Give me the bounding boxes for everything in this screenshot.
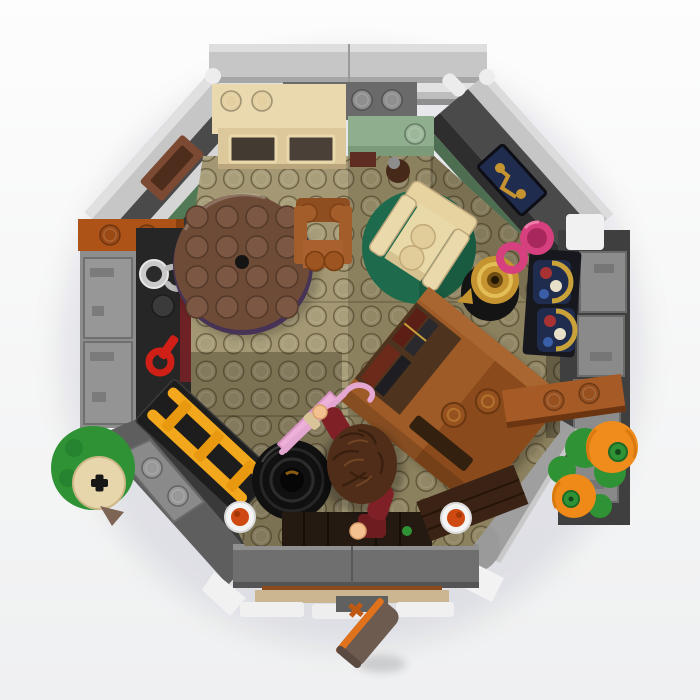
wall-face xyxy=(233,544,479,588)
lamp-hole xyxy=(491,276,499,284)
pumpkin-stem-center xyxy=(569,497,574,502)
gold-detail-2 xyxy=(516,189,526,199)
threshold-strip xyxy=(262,586,442,590)
stud xyxy=(352,90,372,110)
panel-emboss xyxy=(92,392,106,402)
stud xyxy=(252,91,272,111)
stud xyxy=(325,252,344,271)
green-plate-stud xyxy=(65,439,83,457)
white-slope-piece xyxy=(396,602,454,617)
stained-glass-tile xyxy=(533,260,571,304)
tile-cream xyxy=(554,328,566,340)
kitchen-dresser xyxy=(212,84,346,169)
panel-emboss xyxy=(594,264,614,273)
panel-emboss xyxy=(92,306,104,316)
jug-cap xyxy=(388,157,400,169)
food xyxy=(447,509,465,527)
stained-glass-tile xyxy=(537,308,575,352)
dark-stud xyxy=(152,295,174,317)
panel-emboss xyxy=(90,352,114,361)
dresser-window xyxy=(288,136,334,162)
tile-red xyxy=(540,267,552,279)
tile-red xyxy=(544,315,556,327)
stained-glass-windows xyxy=(522,248,581,357)
stud xyxy=(405,124,425,144)
black-cauldron xyxy=(252,440,332,520)
stud xyxy=(142,458,162,478)
right-hand xyxy=(350,523,366,539)
green-stud xyxy=(402,526,412,536)
axle-hole xyxy=(96,475,104,492)
panel-brick xyxy=(578,316,624,376)
gold-detail-1 xyxy=(495,163,505,173)
lego-product-photo: Top-down product photo of a LEGO octagon… xyxy=(0,0,700,700)
stud xyxy=(382,90,402,110)
food xyxy=(231,508,249,526)
white-slope-piece xyxy=(566,214,604,250)
panel-emboss xyxy=(590,352,612,361)
stud xyxy=(100,225,120,245)
tankard-opening xyxy=(146,266,162,282)
jug-opening xyxy=(527,228,547,248)
food-detail xyxy=(234,511,240,517)
panel-emboss xyxy=(90,268,114,277)
scene-svg: Top-down product photo of a LEGO octagon… xyxy=(0,0,700,700)
corner-cap xyxy=(205,68,221,84)
food-detail xyxy=(456,512,462,518)
stud xyxy=(306,252,325,271)
tile-blue xyxy=(543,337,553,347)
dresser-shade xyxy=(218,164,346,169)
white-slope-piece xyxy=(240,602,304,617)
dresser-window xyxy=(230,136,276,162)
tile-blue xyxy=(539,289,549,299)
corner-cap xyxy=(479,69,495,85)
stud xyxy=(221,91,241,111)
red-box xyxy=(350,152,376,167)
panel-brick xyxy=(580,252,626,312)
stud xyxy=(168,486,188,506)
pumpkin-stem-center xyxy=(615,449,621,455)
table-center-hole xyxy=(235,255,249,269)
tile-cream xyxy=(550,280,562,292)
left-hand xyxy=(313,405,327,419)
